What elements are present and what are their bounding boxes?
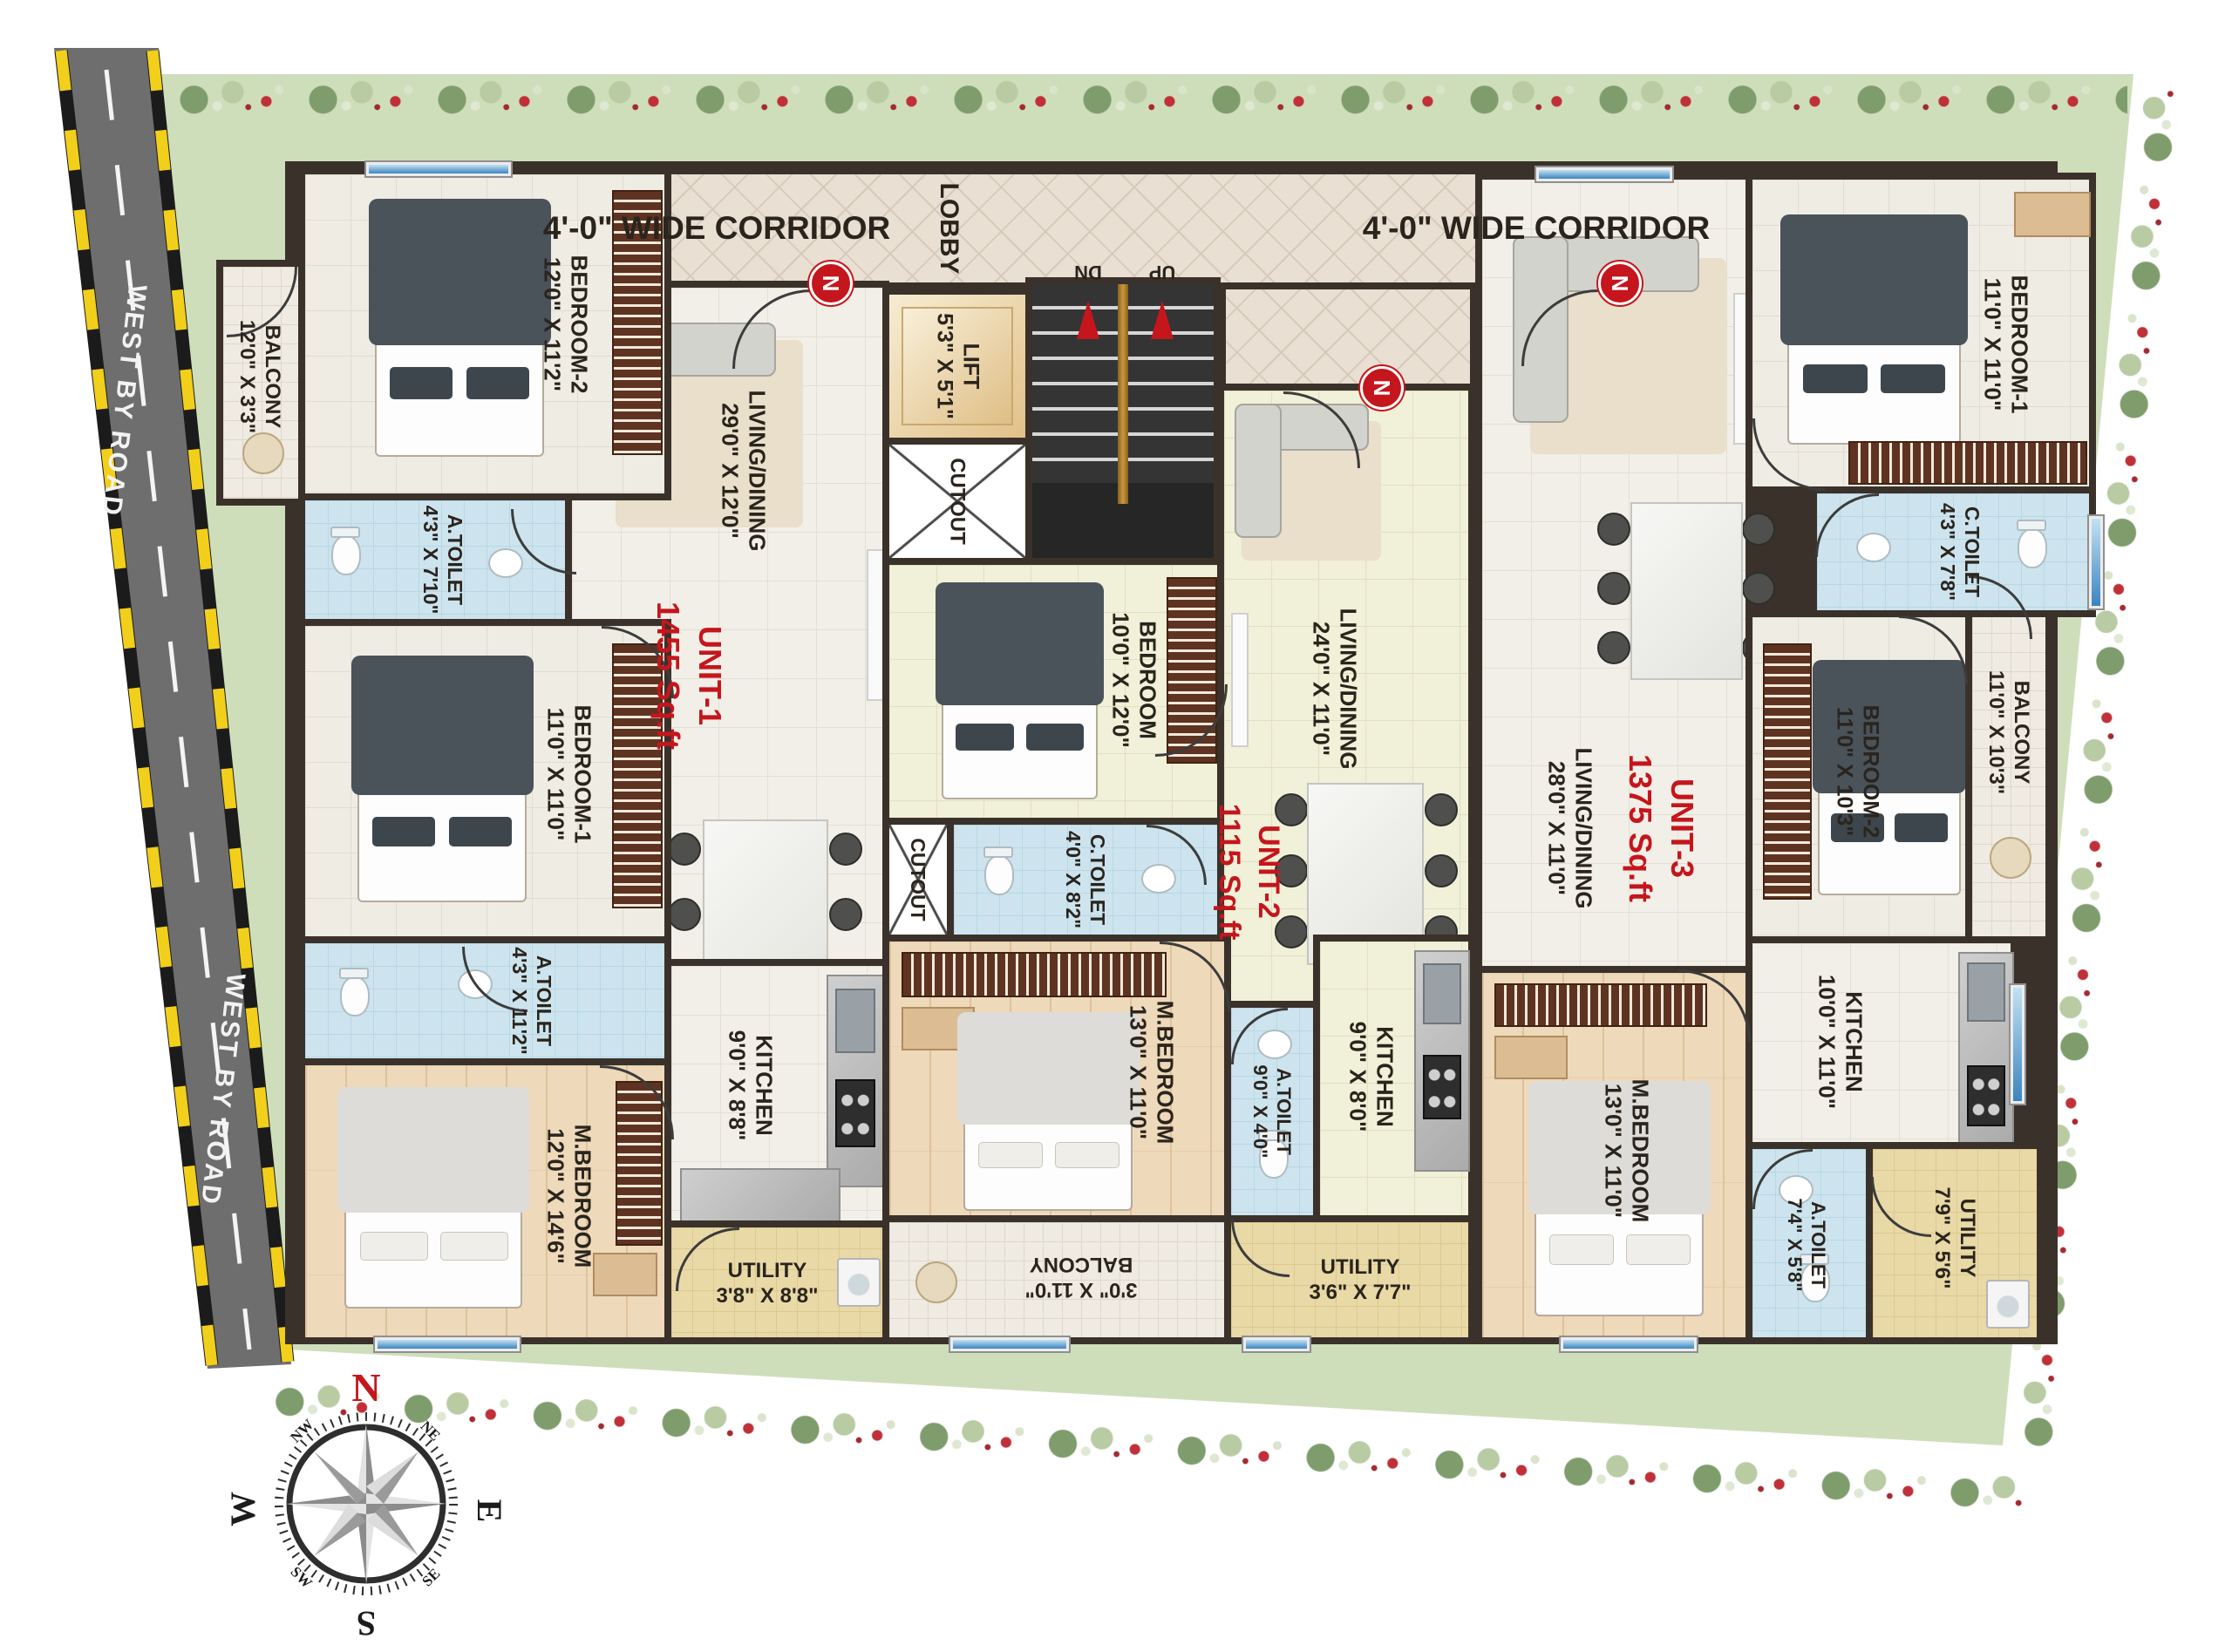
compass-north-label: N (351, 1365, 380, 1410)
kitchen-sink (1967, 962, 2005, 1022)
unit3-living-label: LIVING/DINING28'0" X 11'0" (1544, 748, 1596, 909)
toilet-wc (340, 976, 370, 1016)
sofa (1235, 404, 1282, 538)
staircase (1025, 277, 1221, 565)
bed (375, 209, 544, 457)
window (2089, 516, 2103, 608)
corridor-left-label: 4'-0" WIDE CORRIDOR (543, 210, 890, 247)
bed (344, 1096, 522, 1309)
bed-duvet (1780, 214, 1968, 345)
kitchen-sink (835, 989, 875, 1053)
bed (963, 1020, 1133, 1211)
unit1-utility-label: UTILITY3'8" X 8'8" (717, 1260, 819, 1307)
cutout-unit2-label: CUTOUT (908, 838, 929, 921)
window (366, 162, 511, 176)
bed-pillow (1626, 1234, 1691, 1265)
bed-pillow (449, 817, 512, 847)
bed-duvet (936, 582, 1104, 705)
bed-duvet (957, 1012, 1140, 1125)
toilet-wc (331, 535, 361, 575)
washing-machine (837, 1258, 881, 1307)
unit2-living-label: LIVING/DINING24'0" X 11'0" (1309, 608, 1360, 770)
lobby-label: LOBBY (935, 183, 963, 275)
desk (593, 1253, 657, 1296)
stairs-dn-label: DN (1074, 261, 1102, 283)
desk (2014, 192, 2091, 237)
hedge-top (166, 68, 2127, 126)
compass-icon: N S E W NW NE SW SE (218, 1356, 514, 1652)
window (950, 1337, 1069, 1351)
unit1-atoilet-top-label: A.TOILET4'3" X 7'10" (420, 506, 466, 615)
dining-chair (829, 833, 862, 866)
unit1-atoilet-mid-label: A.TOILET4'3" X 11'2" (509, 947, 555, 1055)
dining-chair (1597, 631, 1630, 664)
tv-unit (867, 549, 884, 701)
stair-rail (1118, 284, 1128, 504)
tv-unit (1231, 613, 1249, 747)
unit1-mbedroom-label: M.BEDROOM12'0" X 14'6" (543, 1125, 595, 1268)
balcony-table (1990, 837, 2031, 879)
balcony-table (242, 432, 284, 474)
unit2-ctoilet-label: C.TOILET4'0" X 8'2" (1063, 831, 1108, 928)
unit3-kitchen-label: KITCHEN10'0" X 11'0" (1814, 975, 1866, 1109)
dining-chair (668, 833, 701, 866)
dining-chair (1742, 572, 1775, 605)
compass-se-label: SE (418, 1565, 443, 1589)
dining-table (1630, 502, 1743, 680)
wardrobe (1848, 441, 2087, 485)
unit3-bedroom1-label: BEDROOM-111'0" X 11'0" (1980, 275, 2031, 414)
corridor-right-label: 4'-0" WIDE CORRIDOR (1363, 210, 1710, 247)
kitchen-stove (1423, 1055, 1461, 1119)
compass-nw-label: NW (287, 1416, 316, 1445)
bed (942, 591, 1098, 799)
kitchen-stove (1967, 1065, 2005, 1126)
bed-pillow (978, 1142, 1043, 1168)
unit2-utility-label: UTILITY3'6" X 7'7" (1310, 1256, 1412, 1303)
window (1536, 167, 1672, 181)
toilet-wc (2018, 528, 2047, 568)
unit2-kitchen-label: KITCHEN9'0" X 8'0" (1345, 1022, 1397, 1132)
washing-machine (1986, 1280, 2030, 1329)
compass-sw-label: SW (288, 1563, 316, 1591)
stairs-down-arrow-icon (1077, 301, 1099, 339)
bed-duvet (351, 656, 534, 796)
bed-pillow (440, 1232, 508, 1261)
unit2-bedroom-label: BEDROOM10'0" X 12'0" (1108, 612, 1160, 748)
unit3-label: UNIT-31375 Sq.ft (1622, 754, 1700, 902)
bed (357, 665, 527, 902)
unit1-entry-marker: N (809, 262, 853, 305)
window (375, 1337, 520, 1351)
bed-duvet (369, 199, 551, 345)
dining-chair (1742, 513, 1775, 546)
bed (1787, 223, 1961, 445)
dining-chair (829, 898, 862, 931)
desk (1494, 1036, 1568, 1079)
unit2-balcony-label: 3'0" X 11'0"BALCONY (1025, 1254, 1138, 1301)
stairs-up-label: UP (1149, 261, 1176, 283)
unit3-mbedroom-label: M.BEDROOM13'0" X 11'0" (1601, 1079, 1652, 1223)
wardrobe (1494, 983, 1707, 1027)
compass-east-label: E (470, 1499, 509, 1523)
dining-chair (1425, 793, 1458, 826)
window (1243, 1337, 1310, 1351)
compass-south-label: S (357, 1604, 376, 1643)
window (2011, 985, 2024, 1104)
unit3-balcony-label: BALCONY11'0" X 10'3" (1985, 670, 2032, 794)
unit1-kitchen-label: KITCHEN9'0" X 8'8" (725, 1030, 776, 1141)
lift-label: LIFT5'3" X 5'1" (933, 313, 983, 419)
unit3-utility-label: UTILITY7'9" X 5'6" (1931, 1187, 1978, 1289)
unit1-living-label: LIVING/DINING29'0" X 12'0" (718, 391, 769, 552)
kitchen-counter (680, 1168, 840, 1222)
wardrobe (902, 952, 1167, 997)
window (1561, 1337, 1697, 1351)
unit1-bedroom1-label: BEDROOM-111'0" X 11'0" (543, 705, 595, 844)
floor-plan: WEST BY ROAD WEST BY ROAD 4'-0" WIDE COR… (0, 0, 2232, 1652)
bed-duvet (337, 1087, 529, 1213)
bed-pillow (390, 367, 453, 398)
bed-pillow (1055, 1142, 1119, 1168)
unit3-bedroom2-label: BEDROOM-211'0" X 10'3" (1833, 705, 1882, 839)
bed-pillow (1803, 364, 1868, 393)
toilet-basin (488, 548, 523, 578)
bed-pillow (1026, 724, 1085, 751)
stairs-up-arrow-icon (1151, 301, 1174, 339)
unit2-atoilet-label: A.TOILET9'0" X 4'0" (1250, 1064, 1294, 1158)
unit3-ctoilet-label: C.TOILET4'3" X 7'8" (1937, 503, 1983, 601)
unit3-kitchen (1745, 936, 2018, 1149)
bed-pillow (1895, 813, 1948, 842)
bed-pillow (372, 817, 435, 847)
balcony-table (915, 1261, 957, 1303)
bed-pillow (1549, 1234, 1614, 1265)
unit2-label: UNIT-21115 Sq.ft (1212, 804, 1285, 941)
kitchen-stove (835, 1079, 875, 1147)
dining-chair (1597, 572, 1630, 605)
unit1-balcony-label: BALCONY12'0" X 3'3" (236, 320, 283, 433)
bed-pillow (1881, 364, 1945, 393)
unit3-atoilet-label: A.TOILET7'4" X 5'8" (1785, 1198, 1828, 1291)
cutout-core-label: CUTOUT (946, 458, 968, 545)
corridor-extension (1219, 282, 1477, 391)
unit1-label: UNIT-11455 Sq.ft (650, 602, 728, 750)
dining-chair (1597, 513, 1630, 546)
unit1-bedroom2-label: BEDROOM-212'0" X 11'2" (540, 255, 591, 394)
toilet-wc (984, 855, 1014, 895)
unit2-mbedroom-label: M.BEDROOM13'0" X 11'0" (1126, 1001, 1177, 1145)
unit2-entry-marker: N (1360, 366, 1404, 410)
dining-chair (1425, 854, 1458, 887)
bed-pillow (956, 724, 1014, 751)
bed-pillow (466, 367, 529, 398)
wardrobe (1763, 643, 1812, 900)
kitchen-sink (1423, 963, 1461, 1024)
unit3-entry-marker: N (1598, 262, 1642, 305)
compass-west-label: W (223, 1492, 262, 1526)
bed-pillow (360, 1232, 428, 1261)
dining-chair (668, 898, 701, 931)
